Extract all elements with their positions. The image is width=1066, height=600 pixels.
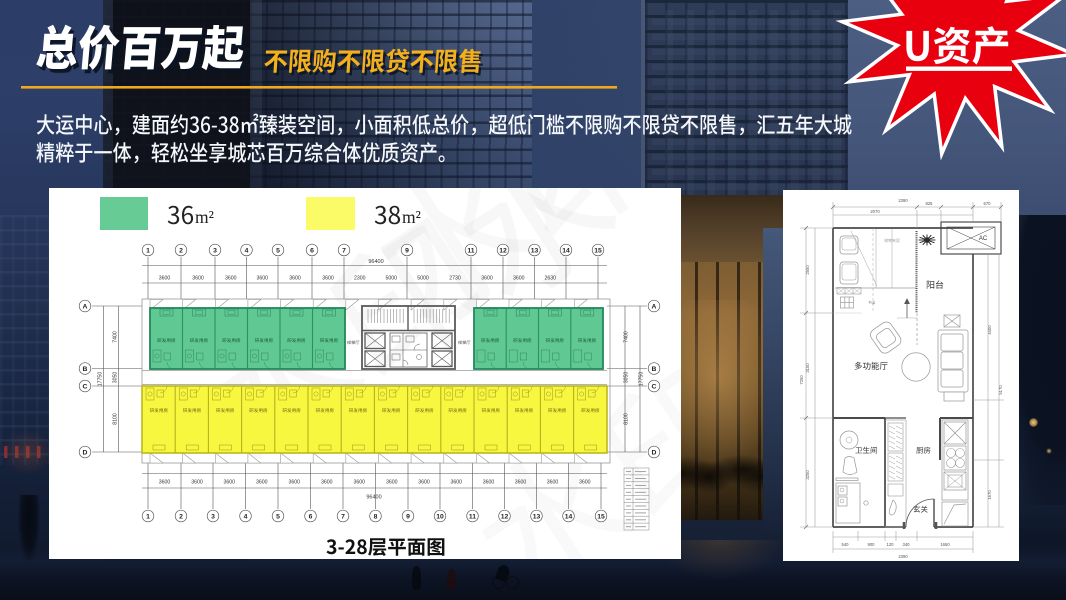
svg-text:3050: 3050	[624, 372, 630, 384]
svg-text:3600: 3600	[289, 276, 301, 282]
svg-text:3600: 3600	[322, 276, 334, 282]
svg-text:5: 5	[276, 247, 280, 254]
svg-text:C: C	[83, 383, 88, 390]
svg-text:3600: 3600	[481, 276, 493, 282]
svg-text:5: 5	[276, 513, 280, 520]
svg-text:96400: 96400	[368, 259, 383, 265]
svg-text:9: 9	[405, 247, 409, 254]
svg-text:3600: 3600	[191, 480, 203, 486]
svg-text:2630: 2630	[544, 276, 556, 282]
svg-text:A: A	[652, 303, 657, 310]
svg-text:10: 10	[436, 513, 444, 520]
svg-text:C: C	[652, 383, 657, 390]
svg-text:4: 4	[244, 513, 248, 520]
svg-text:1670: 1670	[987, 490, 992, 500]
svg-text:3600: 3600	[256, 276, 268, 282]
svg-text:6: 6	[310, 247, 314, 254]
svg-text:3600: 3600	[450, 480, 462, 486]
svg-text:9: 9	[406, 513, 410, 520]
svg-text:3600: 3600	[483, 480, 495, 486]
svg-text:3600: 3600	[386, 480, 398, 486]
svg-text:15: 15	[597, 513, 605, 520]
svg-text:B: B	[652, 366, 657, 373]
svg-text:5170: 5170	[998, 385, 1003, 395]
svg-text:3600: 3600	[159, 480, 171, 486]
svg-text:17750: 17750	[98, 372, 104, 387]
svg-text:4: 4	[245, 247, 249, 254]
svg-text:3600: 3600	[547, 480, 559, 486]
svg-text:120: 120	[887, 542, 895, 547]
svg-text:B: B	[83, 366, 88, 373]
svg-text:340: 340	[903, 542, 911, 547]
svg-text:3600: 3600	[192, 276, 204, 282]
svg-text:3150: 3150	[805, 363, 810, 373]
svg-text:8100: 8100	[113, 413, 119, 425]
svg-text:825: 825	[926, 201, 934, 206]
svg-text:14: 14	[562, 247, 570, 254]
svg-text:3600: 3600	[288, 480, 300, 486]
svg-text:5000: 5000	[417, 276, 429, 282]
svg-text:11: 11	[469, 513, 476, 520]
svg-text:D: D	[652, 449, 657, 456]
svg-text:3600: 3600	[256, 480, 268, 486]
svg-text:3250: 3250	[805, 470, 810, 480]
svg-text:1: 1	[146, 513, 150, 520]
svg-text:1: 1	[146, 247, 150, 254]
svg-text:2: 2	[179, 513, 183, 520]
svg-text:3: 3	[211, 513, 215, 520]
svg-text:540: 540	[842, 542, 850, 547]
svg-text:15: 15	[594, 247, 602, 254]
svg-text:3600: 3600	[515, 480, 527, 486]
svg-text:1650: 1650	[940, 542, 950, 547]
svg-text:3050: 3050	[113, 372, 119, 384]
svg-text:m²: m²	[402, 207, 421, 227]
svg-text:A: A	[83, 303, 88, 310]
svg-text:4400: 4400	[987, 325, 992, 335]
svg-text:7: 7	[341, 513, 345, 520]
svg-text:900: 900	[868, 542, 876, 547]
svg-text:2550: 2550	[805, 265, 810, 275]
svg-text:3600: 3600	[159, 276, 171, 282]
svg-text:3: 3	[213, 247, 217, 254]
svg-text:3600: 3600	[513, 276, 525, 282]
svg-text:3600: 3600	[223, 480, 235, 486]
svg-text:D: D	[83, 449, 88, 456]
svg-text:12: 12	[499, 247, 507, 254]
svg-text:14: 14	[565, 513, 573, 520]
svg-text:2300: 2300	[354, 276, 366, 282]
svg-text:3600: 3600	[321, 480, 333, 486]
svg-text:m²: m²	[195, 207, 214, 227]
svg-text:3600: 3600	[353, 480, 365, 486]
svg-text:2390: 2390	[898, 198, 908, 203]
svg-text:96400: 96400	[366, 495, 381, 501]
svg-text:8100: 8100	[624, 413, 630, 425]
svg-text:13: 13	[531, 247, 539, 254]
svg-text:2070: 2070	[870, 209, 880, 214]
svg-text:6: 6	[309, 513, 313, 520]
svg-text:2730: 2730	[449, 276, 461, 282]
svg-text:11: 11	[467, 247, 474, 254]
svg-text:7400: 7400	[624, 331, 630, 343]
svg-text:7250: 7250	[799, 375, 804, 385]
svg-text:2390: 2390	[898, 554, 908, 559]
svg-text:12: 12	[501, 513, 509, 520]
svg-text:7400: 7400	[113, 331, 119, 343]
svg-text:AC: AC	[979, 236, 988, 242]
svg-text:13: 13	[533, 513, 541, 520]
svg-text:17750: 17750	[639, 372, 645, 387]
svg-text:5000: 5000	[385, 276, 397, 282]
svg-text:3600: 3600	[579, 480, 591, 486]
svg-text:670: 670	[984, 201, 992, 206]
svg-text:2: 2	[179, 247, 183, 254]
svg-text:3600: 3600	[225, 276, 237, 282]
svg-text:8: 8	[374, 513, 378, 520]
svg-text:3600: 3600	[418, 480, 430, 486]
svg-text:7: 7	[342, 247, 346, 254]
